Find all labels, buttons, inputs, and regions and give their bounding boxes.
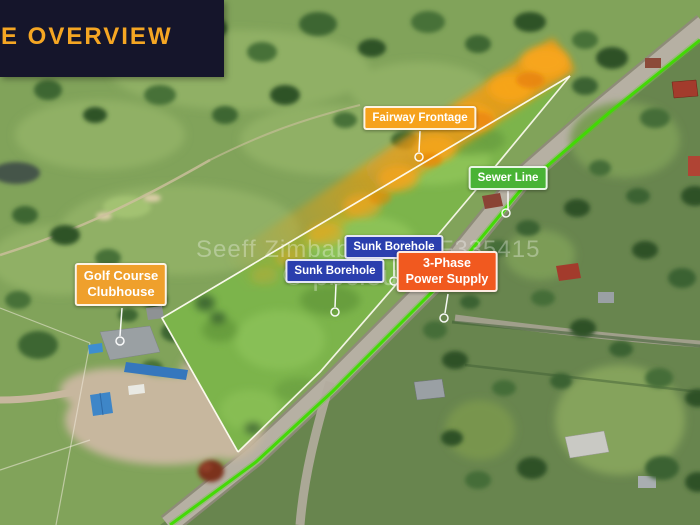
label-three-phase-power: 3-Phase Power Supply <box>397 251 498 292</box>
site-overview-slide: Seeff Zimbabwe - SLF335415 © pbcloud Fai… <box>0 0 700 525</box>
title-banner: E OVERVIEW <box>0 0 224 77</box>
page-title: E OVERVIEW <box>1 23 173 51</box>
power-label-line2: Power Supply <box>406 272 489 288</box>
clubhouse-label-line2: Clubhouse <box>84 284 158 300</box>
label-sewer-line: Sewer Line <box>469 166 548 190</box>
label-fairway-frontage: Fairway Frontage <box>363 106 476 130</box>
red-tree <box>198 460 224 482</box>
power-label-line1: 3-Phase <box>406 256 489 272</box>
label-sunk-borehole-lower: Sunk Borehole <box>285 259 384 283</box>
clubhouse-label-line1: Golf Course <box>84 268 158 284</box>
label-golf-course-clubhouse: Golf Course Clubhouse <box>75 263 167 306</box>
